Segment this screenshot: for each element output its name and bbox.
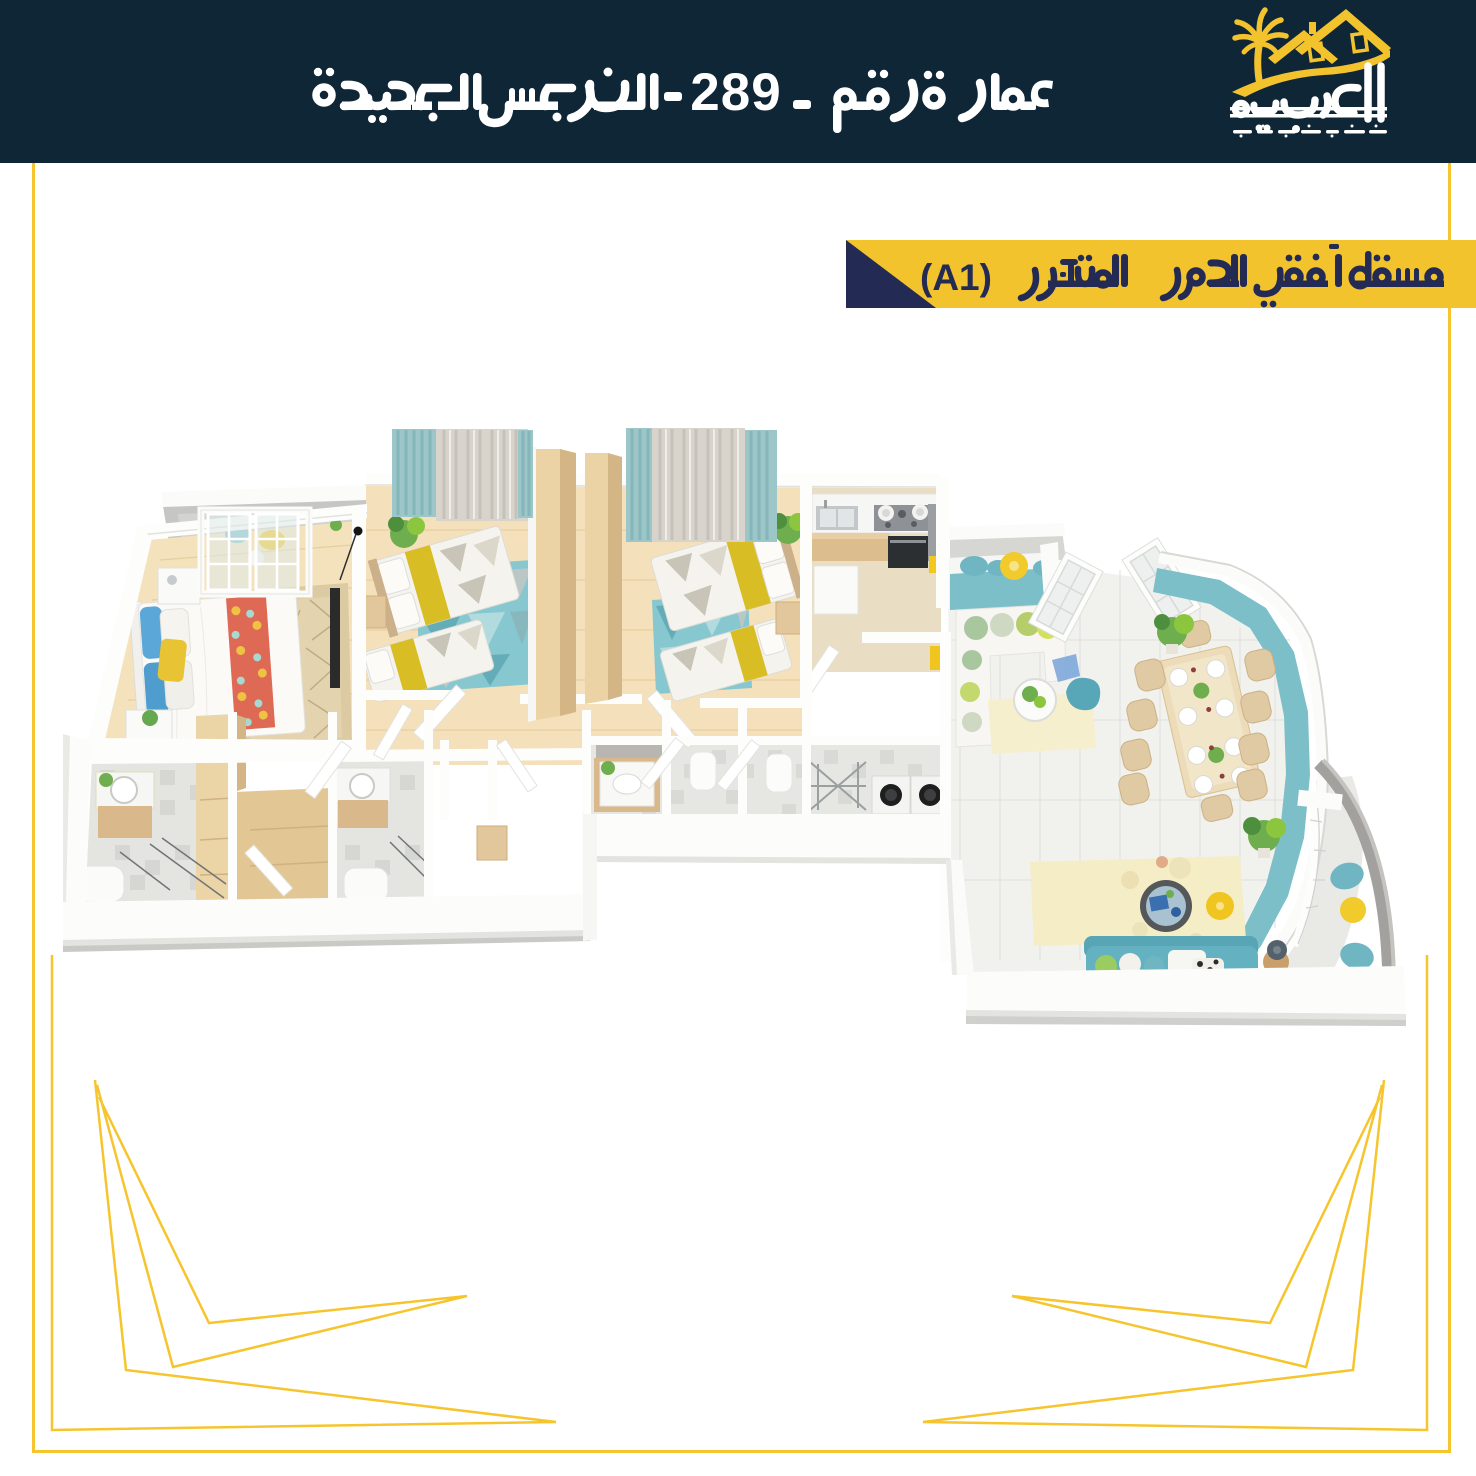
svg-text:(A1): (A1) — [920, 257, 992, 298]
svg-text:289: 289 — [690, 63, 781, 122]
